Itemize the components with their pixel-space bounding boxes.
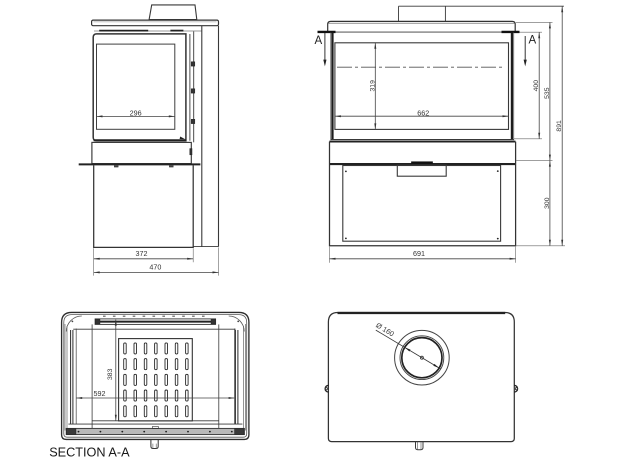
svg-text:470: 470 — [149, 263, 161, 272]
svg-text:300: 300 — [544, 197, 551, 209]
svg-text:691: 691 — [413, 249, 425, 258]
svg-text:SECTION A-A: SECTION A-A — [49, 445, 130, 459]
svg-text:891: 891 — [556, 120, 563, 132]
svg-text:A: A — [528, 35, 536, 47]
svg-text:319: 319 — [370, 80, 377, 92]
svg-text:400: 400 — [533, 80, 540, 92]
svg-text:296: 296 — [130, 108, 142, 117]
svg-text:662: 662 — [417, 109, 429, 118]
svg-text:372: 372 — [136, 249, 148, 258]
svg-text:535: 535 — [544, 87, 551, 99]
svg-text:A: A — [314, 35, 322, 47]
svg-text:592: 592 — [94, 389, 106, 398]
svg-text:383: 383 — [107, 368, 114, 380]
